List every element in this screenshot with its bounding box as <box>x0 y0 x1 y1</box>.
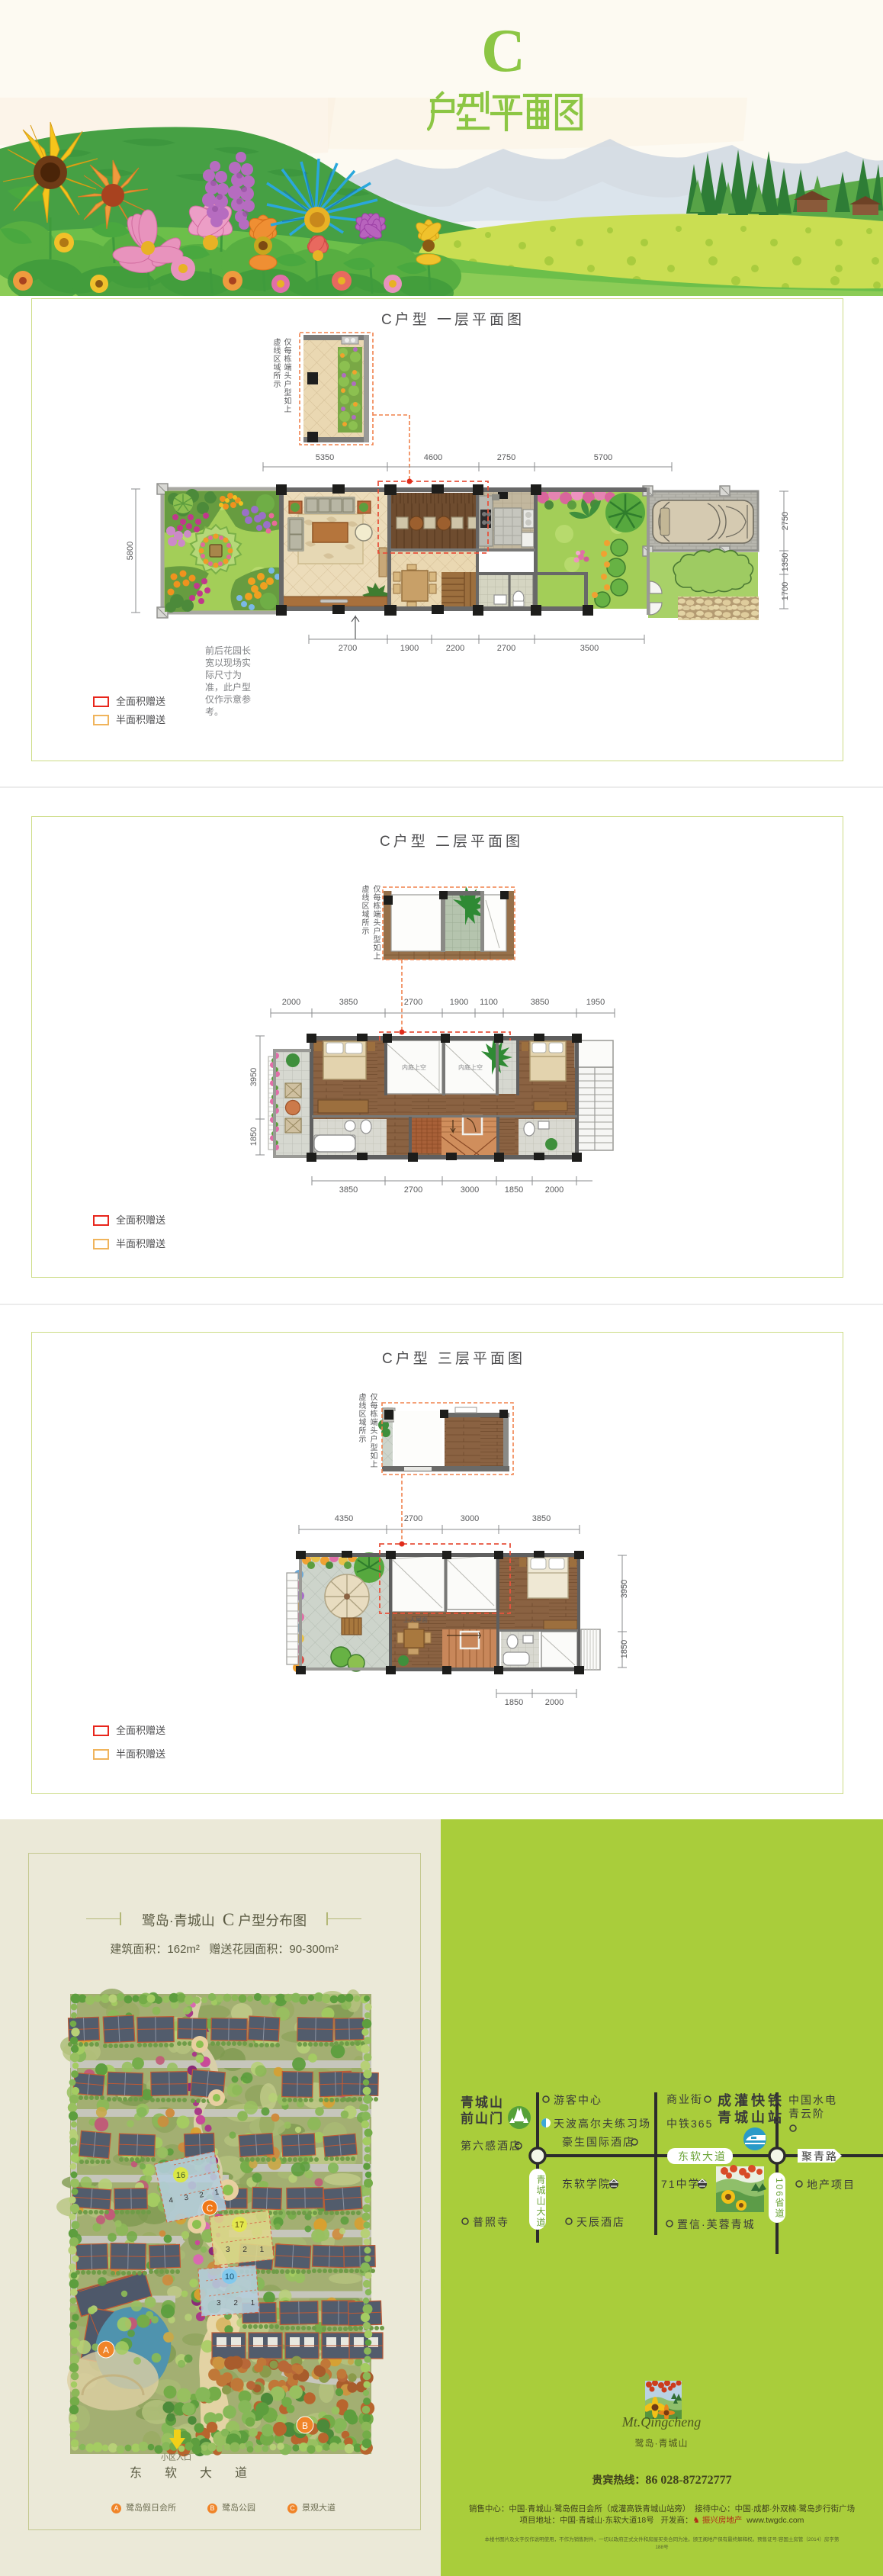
svg-text:2750: 2750 <box>781 512 790 530</box>
svg-text:1900: 1900 <box>450 998 468 1007</box>
svg-text:青城山大道: 青城山大道 <box>535 2175 546 2228</box>
svg-text:1850: 1850 <box>249 1127 258 1146</box>
svg-text:106省道: 106省道 <box>774 2178 785 2219</box>
svg-text:1950: 1950 <box>586 998 605 1007</box>
svg-text:第六感酒店: 第六感酒店 <box>461 2140 522 2152</box>
svg-text:置信·芙蓉青城: 置信·芙蓉青城 <box>677 2218 756 2230</box>
svg-text:内庭上空: 内庭上空 <box>458 1063 483 1071</box>
svg-text:1850: 1850 <box>505 1698 523 1707</box>
svg-text:普照寺: 普照寺 <box>473 2216 509 2228</box>
svg-text:商业街: 商业街 <box>666 2093 703 2105</box>
svg-text:16: 16 <box>176 2171 185 2180</box>
svg-text:2700: 2700 <box>404 1185 422 1195</box>
svg-text:3850: 3850 <box>532 1514 551 1523</box>
svg-text:青城山: 青城山 <box>461 2095 504 2110</box>
svg-text:3950: 3950 <box>620 1580 629 1598</box>
svg-text:豪生国际酒店: 豪生国际酒店 <box>562 2136 635 2148</box>
svg-text:东软学院: 东软学院 <box>562 2178 611 2190</box>
svg-text:2000: 2000 <box>545 1698 564 1707</box>
svg-text:2700: 2700 <box>339 644 357 653</box>
svg-text:2000: 2000 <box>545 1185 564 1195</box>
svg-text:青城山站: 青城山站 <box>718 2109 785 2125</box>
svg-text:1100: 1100 <box>480 998 498 1007</box>
svg-text:东软大道: 东软大道 <box>678 2150 727 2163</box>
svg-text:2700: 2700 <box>404 998 422 1007</box>
svg-text:天波高尔夫练习场: 天波高尔夫练习场 <box>554 2118 651 2130</box>
svg-text:3 2 1: 3 2 1 <box>217 2299 260 2307</box>
svg-text:A: A <box>103 2345 109 2356</box>
svg-text:5800: 5800 <box>126 542 135 560</box>
svg-text:1700: 1700 <box>781 582 790 600</box>
svg-text:中铁365: 中铁365 <box>666 2118 713 2130</box>
svg-text:5700: 5700 <box>594 453 612 462</box>
svg-text:2700: 2700 <box>404 1514 422 1523</box>
svg-text:2750: 2750 <box>497 453 515 462</box>
svg-text:3000: 3000 <box>461 1185 479 1195</box>
svg-text:3 2 1: 3 2 1 <box>226 2246 269 2254</box>
svg-text:3500: 3500 <box>580 644 599 653</box>
svg-text:17: 17 <box>235 2221 244 2230</box>
svg-text:2700: 2700 <box>497 644 515 653</box>
svg-text:地产项目: 地产项目 <box>807 2179 856 2191</box>
svg-text:3950: 3950 <box>249 1068 258 1086</box>
svg-text:10: 10 <box>225 2272 234 2282</box>
svg-text:B: B <box>302 2420 308 2431</box>
svg-text:4600: 4600 <box>424 453 442 462</box>
svg-text:C: C <box>207 2203 214 2214</box>
svg-text:内庭上空: 内庭上空 <box>402 1063 426 1071</box>
svg-text:青云阶: 青云阶 <box>788 2108 825 2120</box>
svg-text:中国水电: 中国水电 <box>788 2094 837 2106</box>
svg-text:3850: 3850 <box>339 1185 358 1195</box>
svg-text:聚青路: 聚青路 <box>801 2150 838 2163</box>
svg-text:1900: 1900 <box>400 644 419 653</box>
svg-text:3850: 3850 <box>339 998 358 1007</box>
svg-text:1350: 1350 <box>781 553 790 571</box>
svg-text:3850: 3850 <box>531 998 549 1007</box>
svg-text:游客中心: 游客中心 <box>554 2094 602 2106</box>
svg-text:4350: 4350 <box>335 1514 353 1523</box>
svg-text:成灌快铁: 成灌快铁 <box>718 2092 785 2108</box>
svg-text:1850: 1850 <box>505 1185 523 1195</box>
svg-text:天辰酒店: 天辰酒店 <box>576 2216 625 2228</box>
svg-text:2000: 2000 <box>282 998 300 1007</box>
svg-text:3000: 3000 <box>461 1514 479 1523</box>
svg-text:前山门: 前山门 <box>461 2111 504 2126</box>
svg-text:2200: 2200 <box>446 644 464 653</box>
svg-text:1850: 1850 <box>620 1640 629 1658</box>
svg-text:71中学: 71中学 <box>661 2178 701 2190</box>
svg-text:5350: 5350 <box>316 453 334 462</box>
